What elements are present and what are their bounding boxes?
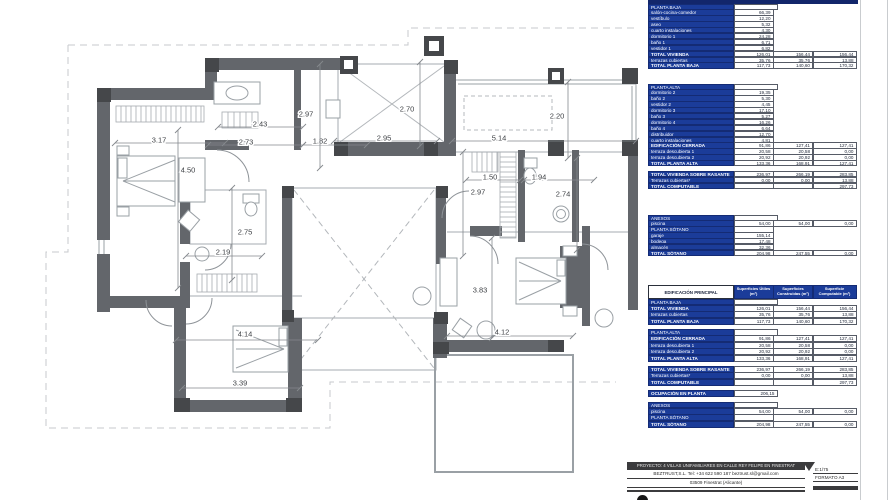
chair-icon [595, 309, 613, 327]
sink-icon [226, 86, 248, 100]
dimension-label: 4.12 [495, 328, 510, 337]
table-row: TOTAL SÓTANO204,98247,550,00 [648, 421, 858, 428]
table-row: TOTAL PLANTA ALTA133,36168,91127,41 [648, 355, 858, 362]
table-row: TOTAL PLANTA BAJA117,73140,60170,32 [648, 62, 858, 68]
chair-icon [452, 318, 471, 337]
toilet-icon [326, 100, 340, 118]
table-row: OCUPACIÓN EN PLANTA206,15 [648, 390, 858, 397]
table-row: TOTAL PLANTA BAJA117,73140,60170,32 [648, 318, 858, 325]
col-utiles: Superficies Útiles (m²) [734, 285, 774, 299]
dimension-label: 2.95 [377, 134, 392, 143]
col-construidas: Superficies Construidas (m²) [773, 285, 813, 299]
table-anexos: ANEXOSpiscina54,0054,000,00PLANTA SÓTANO… [648, 215, 858, 256]
address-line: 03509 Finestrat (Alicante) [627, 479, 805, 488]
sink-icon [195, 247, 209, 261]
dimension-label: 2.74 [556, 190, 571, 199]
summary-title: EDIFICACIÓN PRINCIPAL [648, 285, 734, 299]
dimension-label: 2.20 [550, 112, 565, 121]
toilet-icon [243, 194, 259, 216]
title-block-main: PROYECTO: 4 VILLAS UNIFAMILIARES EN CALL… [627, 462, 805, 492]
sink-icon [553, 206, 569, 222]
title-block: PROYECTO: 4 VILLAS UNIFAMILIARES EN CALL… [627, 462, 858, 500]
dimension-label: 1.50 [483, 173, 498, 182]
drawing-sheet: 3.172.432.731.822.974.502.952.705.142.20… [0, 0, 890, 500]
scale-label: E:1/75 [813, 466, 858, 474]
desk-icon [440, 258, 457, 306]
table-row: TOTAL COMPUTABLE297,73 [648, 379, 858, 386]
dimension-label: 2.73 [239, 138, 254, 147]
summary-header: EDIFICACIÓN PRINCIPAL Superficies Útiles… [648, 285, 858, 299]
sheet-frame-line [887, 0, 888, 500]
dimension-label: 2.43 [253, 120, 268, 129]
dimension-label: 3.17 [152, 136, 167, 145]
meta-bar [813, 486, 858, 490]
dimension-label: 3.83 [473, 286, 488, 295]
table-summary: EDIFICACIÓN PRINCIPAL Superficies Útiles… [648, 285, 858, 428]
double-height-void-cross [294, 66, 444, 368]
chair-icon [413, 287, 431, 305]
company-line: BEZTRUST,S.L. Tel: +34 622 590 187 beztr… [627, 470, 805, 479]
dimension-label: 2.97 [471, 188, 486, 197]
table-planta-alta: PLANTA ALTAdormitorio 219,35baño 25,30ve… [648, 84, 858, 189]
table-row: TOTAL COMPUTABLE297,73 [648, 183, 858, 189]
dimension-label: 3.39 [233, 379, 248, 388]
dimension-label: 4.50 [181, 166, 196, 175]
dimension-label: 2.19 [216, 248, 231, 257]
dimension-label: 2.97 [299, 110, 314, 119]
dimension-label: 4.14 [238, 330, 253, 339]
furniture [117, 82, 613, 372]
table-planta-baja: PLANTA BAJAsalón-cocina-comedor66,39vest… [648, 4, 858, 69]
dimension-label: 5.14 [492, 134, 507, 143]
bed-icon [117, 146, 175, 216]
company-logo [637, 495, 648, 500]
summary-rows: PLANTA BAJATOTAL VIVIENDA126,01156,44156… [648, 299, 858, 428]
dimension-label: 2.70 [400, 105, 415, 114]
dimension-label: 2.75 [238, 228, 253, 237]
format-label: FORMATO A3 [813, 474, 858, 482]
title-block-meta: E:1/75 FORMATO A3 [813, 466, 858, 490]
dimension-label: 1.94 [532, 173, 547, 182]
floor-plan: 3.172.432.731.822.974.502.952.705.142.20… [0, 0, 645, 500]
sheet-frame-line [860, 0, 861, 500]
table-row: TOTAL PLANTA ALTA133,36168,91127,41 [648, 160, 858, 166]
col-computable: Superficie Computable (m²) [813, 285, 857, 299]
table-row: TOTAL SÓTANO204,98247,550,00 [648, 250, 858, 256]
project-title: PROYECTO: 4 VILLAS UNIFAMILIARES EN CALL… [627, 462, 805, 470]
title-rule [627, 490, 805, 493]
